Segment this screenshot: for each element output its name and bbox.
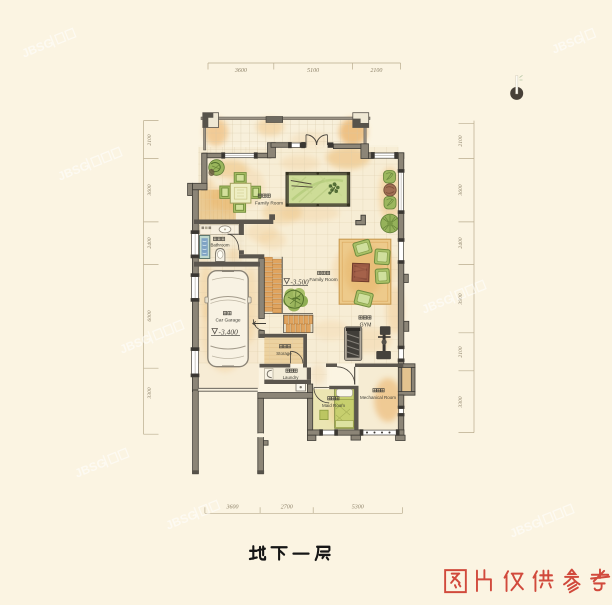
svg-text:3300: 3300 <box>147 387 153 399</box>
svg-text:2400: 2400 <box>147 237 153 248</box>
svg-text:2100: 2100 <box>147 134 153 145</box>
svg-text:Bathroom: Bathroom <box>210 243 229 248</box>
svg-text:3300: 3300 <box>458 396 464 408</box>
svg-text:6000: 6000 <box>147 310 153 321</box>
svg-text:GYM: GYM <box>360 323 372 329</box>
svg-text:2400: 2400 <box>458 237 464 248</box>
svg-text:3600: 3600 <box>226 505 239 511</box>
svg-text:2100: 2100 <box>370 68 382 74</box>
svg-text:Car Garage: Car Garage <box>215 318 240 324</box>
svg-text:2700: 2700 <box>281 505 293 511</box>
svg-text:Laundry: Laundry <box>283 375 300 380</box>
svg-text:Family Room: Family Room <box>309 277 337 283</box>
svg-text:5300: 5300 <box>352 505 364 511</box>
svg-text:Mechanical Room: Mechanical Room <box>360 395 396 400</box>
svg-text:Family Room: Family Room <box>255 201 283 207</box>
svg-text:2100: 2100 <box>458 346 464 357</box>
svg-text:2100: 2100 <box>458 135 464 146</box>
svg-text:3600: 3600 <box>458 184 464 196</box>
svg-text:Storage: Storage <box>276 351 292 356</box>
svg-text:3600: 3600 <box>147 184 153 196</box>
svg-text:Maid Room: Maid Room <box>322 403 345 408</box>
svg-text:3600: 3600 <box>234 68 247 74</box>
svg-text:5100: 5100 <box>307 68 319 74</box>
